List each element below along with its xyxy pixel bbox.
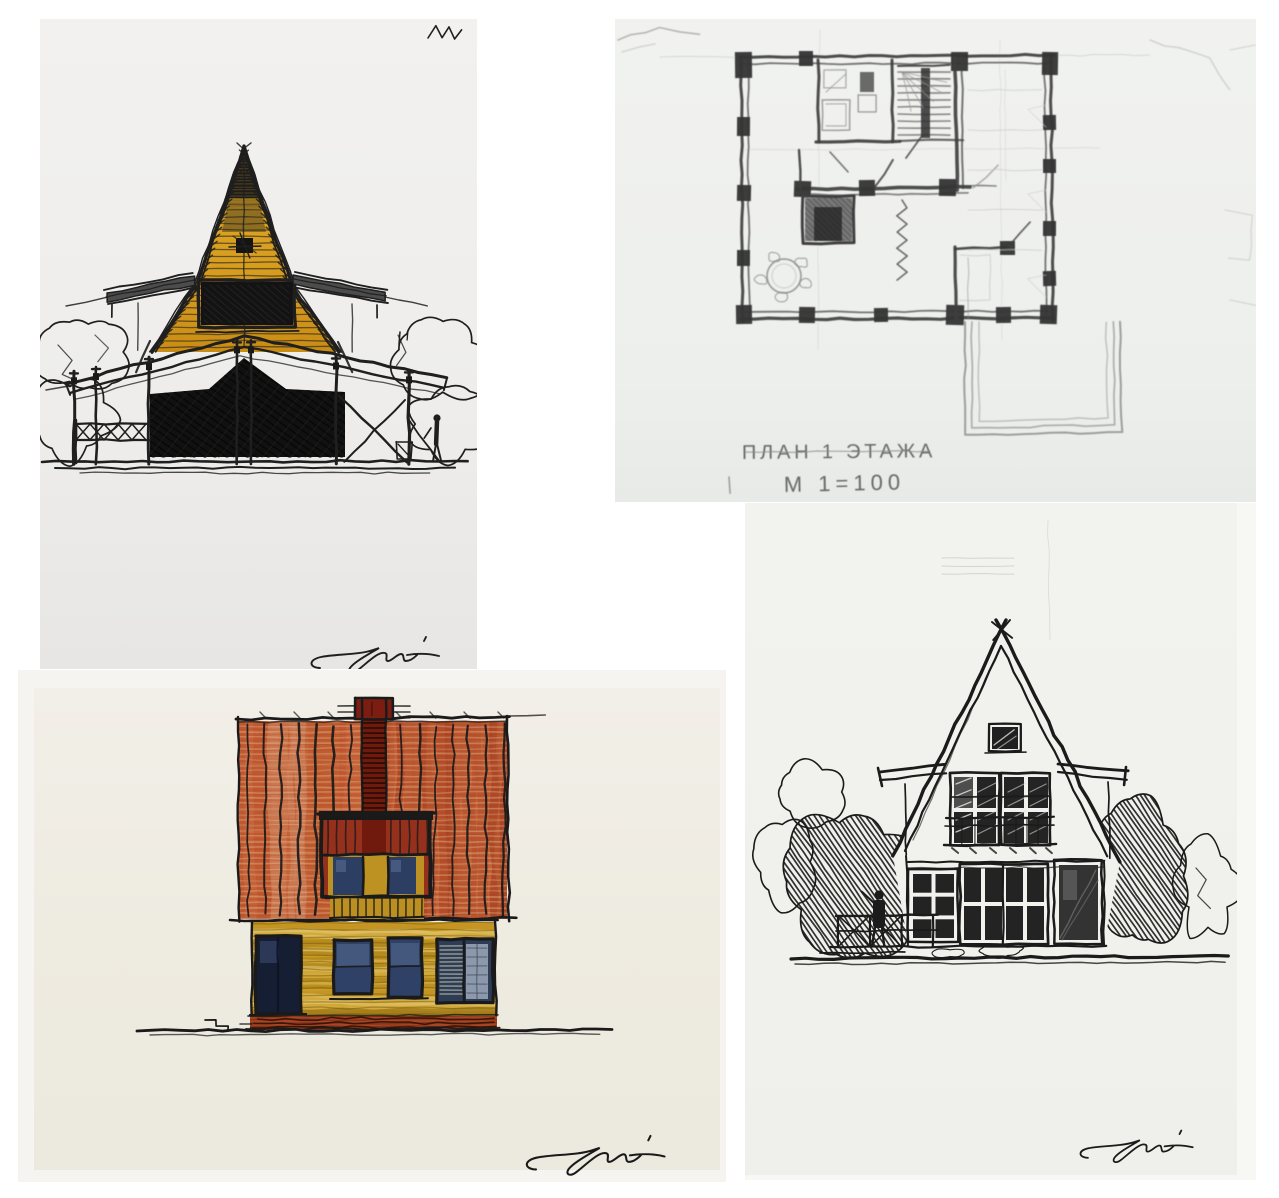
svg-text:М 1=100: М 1=100 [784,469,906,497]
